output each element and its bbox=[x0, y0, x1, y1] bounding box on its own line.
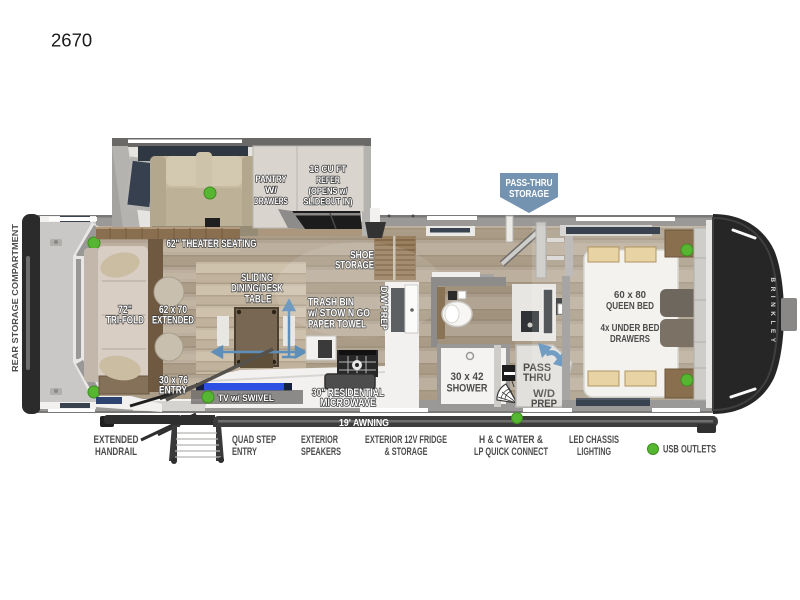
svg-text:HANDRAIL: HANDRAIL bbox=[95, 446, 137, 458]
svg-text:4x UNDER BED: 4x UNDER BED bbox=[601, 323, 660, 334]
svg-text:LP QUICK CONNECT: LP QUICK CONNECT bbox=[474, 446, 548, 458]
svg-text:EXTERIOR: EXTERIOR bbox=[301, 434, 338, 446]
svg-text:PASS-THRU: PASS-THRU bbox=[506, 178, 553, 189]
svg-text:REFER: REFER bbox=[316, 175, 340, 186]
svg-text:SLIDEOUT IN): SLIDEOUT IN) bbox=[304, 197, 353, 208]
svg-text:60 x 80: 60 x 80 bbox=[614, 290, 646, 301]
svg-text:SHOWER: SHOWER bbox=[447, 383, 488, 395]
svg-text:ENTRY: ENTRY bbox=[232, 446, 257, 458]
svg-text:LIGHTING: LIGHTING bbox=[577, 446, 611, 458]
svg-text:SPEAKERS: SPEAKERS bbox=[301, 446, 341, 458]
svg-text:TRI-FOLD: TRI-FOLD bbox=[106, 315, 144, 327]
svg-text:16 CU FT: 16 CU FT bbox=[310, 164, 347, 175]
svg-text:EXTERIOR 12V FRIDGE: EXTERIOR 12V FRIDGE bbox=[365, 434, 447, 446]
svg-text:BRINKLEY: BRINKLEY bbox=[769, 277, 776, 346]
svg-text:EXTENDED: EXTENDED bbox=[152, 315, 194, 327]
svg-text:QUEEN BED: QUEEN BED bbox=[606, 301, 654, 312]
svg-text:& STORAGE: & STORAGE bbox=[385, 446, 428, 458]
svg-text:ENTRY: ENTRY bbox=[159, 385, 188, 397]
svg-text:W/: W/ bbox=[265, 185, 277, 196]
svg-text:REAR STORAGE COMPARTMENT: REAR STORAGE COMPARTMENT bbox=[10, 223, 20, 372]
svg-text:QUAD STEP: QUAD STEP bbox=[232, 434, 276, 446]
svg-text:19' AWNING: 19' AWNING bbox=[339, 417, 389, 429]
svg-text:H & C WATER &: H & C WATER & bbox=[479, 434, 543, 446]
svg-text:PANTRY: PANTRY bbox=[256, 174, 288, 185]
svg-text:USB OUTLETS: USB OUTLETS bbox=[663, 444, 716, 456]
svg-text:TABLE: TABLE bbox=[245, 294, 272, 306]
svg-text:TV w/ SWIVEL: TV w/ SWIVEL bbox=[218, 393, 274, 404]
svg-text:62" THEATER SEATING: 62" THEATER SEATING bbox=[167, 238, 257, 250]
svg-text:DRAWERS: DRAWERS bbox=[254, 196, 288, 207]
svg-text:2670: 2670 bbox=[51, 30, 92, 51]
svg-text:STORAGE: STORAGE bbox=[509, 189, 549, 200]
svg-text:MICROWAVE: MICROWAVE bbox=[320, 397, 376, 409]
svg-text:(OPENS w/: (OPENS w/ bbox=[309, 186, 348, 197]
svg-text:EXTENDED: EXTENDED bbox=[94, 434, 139, 446]
svg-text:DRAWERS: DRAWERS bbox=[610, 334, 650, 345]
svg-text:LED CHASSIS: LED CHASSIS bbox=[569, 434, 619, 446]
svg-text:30 x 42: 30 x 42 bbox=[451, 371, 484, 383]
